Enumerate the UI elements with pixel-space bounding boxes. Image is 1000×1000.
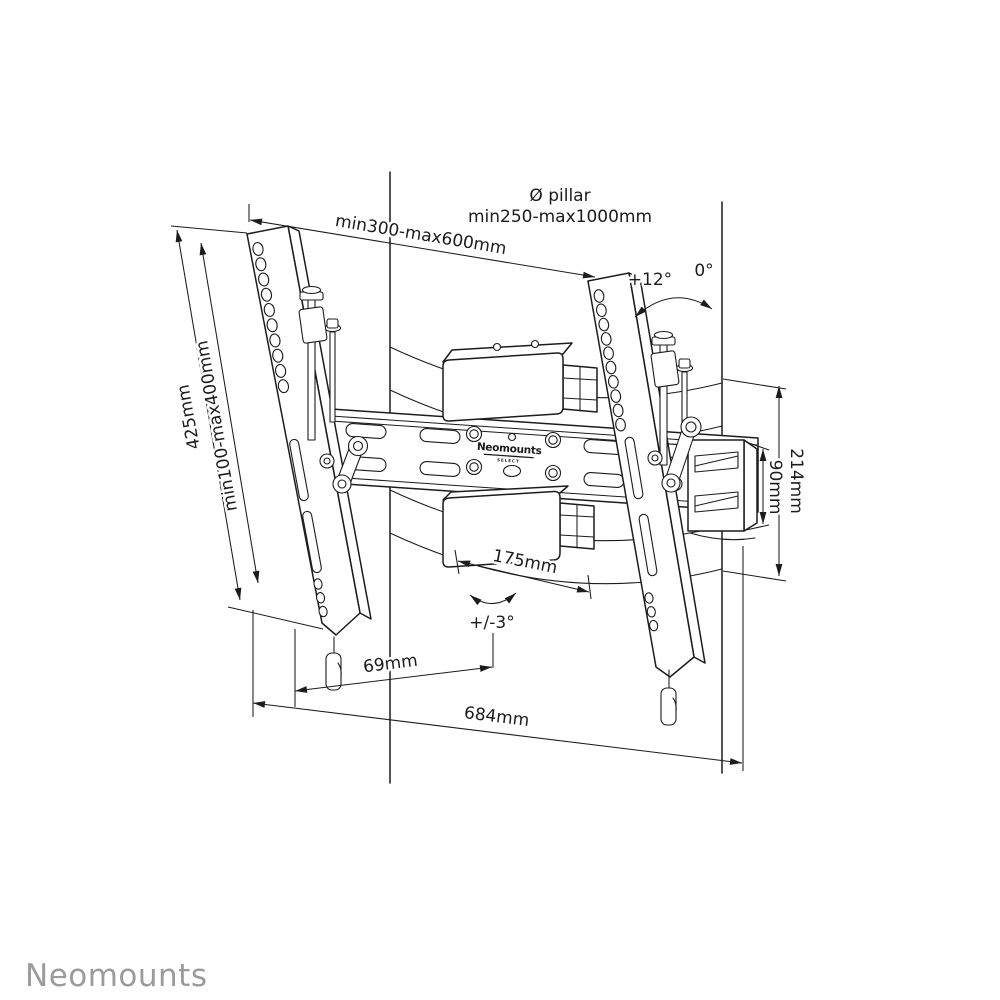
dimension-label-tilt-zero: 0° (694, 261, 713, 281)
dimension-label-offset: 69mm (362, 651, 419, 678)
clamp-box-upper (443, 341, 597, 422)
brand-logo: Neomounts (25, 958, 208, 994)
dimension-label-tilt-up: +12° (628, 270, 672, 290)
dimension-pillar-diameter: Ø pillar min250-max1000mm (468, 186, 652, 227)
dimension-label-swivel: +/-3° (469, 613, 514, 633)
dimension-label-bracket-height: 425mm (174, 383, 205, 451)
pillar-mount-technical-drawing: Neomounts SELECT (0, 0, 1000, 1000)
dimension-label-clamp-height: 214mm (786, 448, 806, 514)
pillar-label-line1: Ø pillar (529, 186, 590, 206)
pillar-label-line2: min250-max1000mm (468, 207, 652, 227)
drawing-canvas: Neomounts SELECT (0, 0, 1000, 1000)
dimension-label-plate-height: 90mm (765, 460, 785, 515)
release-cord-left (326, 637, 341, 690)
pillar-plate (688, 440, 757, 540)
dimension-label-total-width: 684mm (463, 703, 531, 731)
dimension-swivel-angle: +/-3° (469, 593, 516, 633)
release-cord-right (661, 670, 676, 725)
dimension-bottom-inner: 69mm (295, 629, 493, 707)
